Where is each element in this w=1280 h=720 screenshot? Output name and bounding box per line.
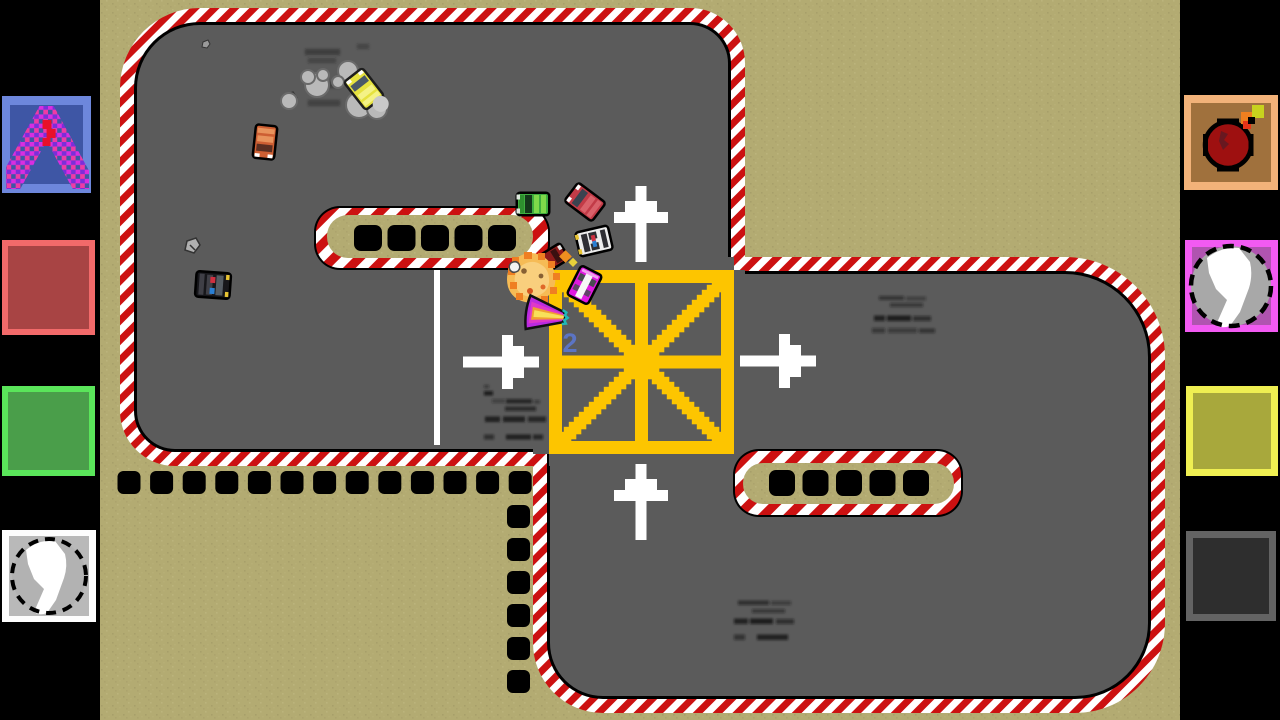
svg-text:2: 2 <box>562 328 577 358</box>
